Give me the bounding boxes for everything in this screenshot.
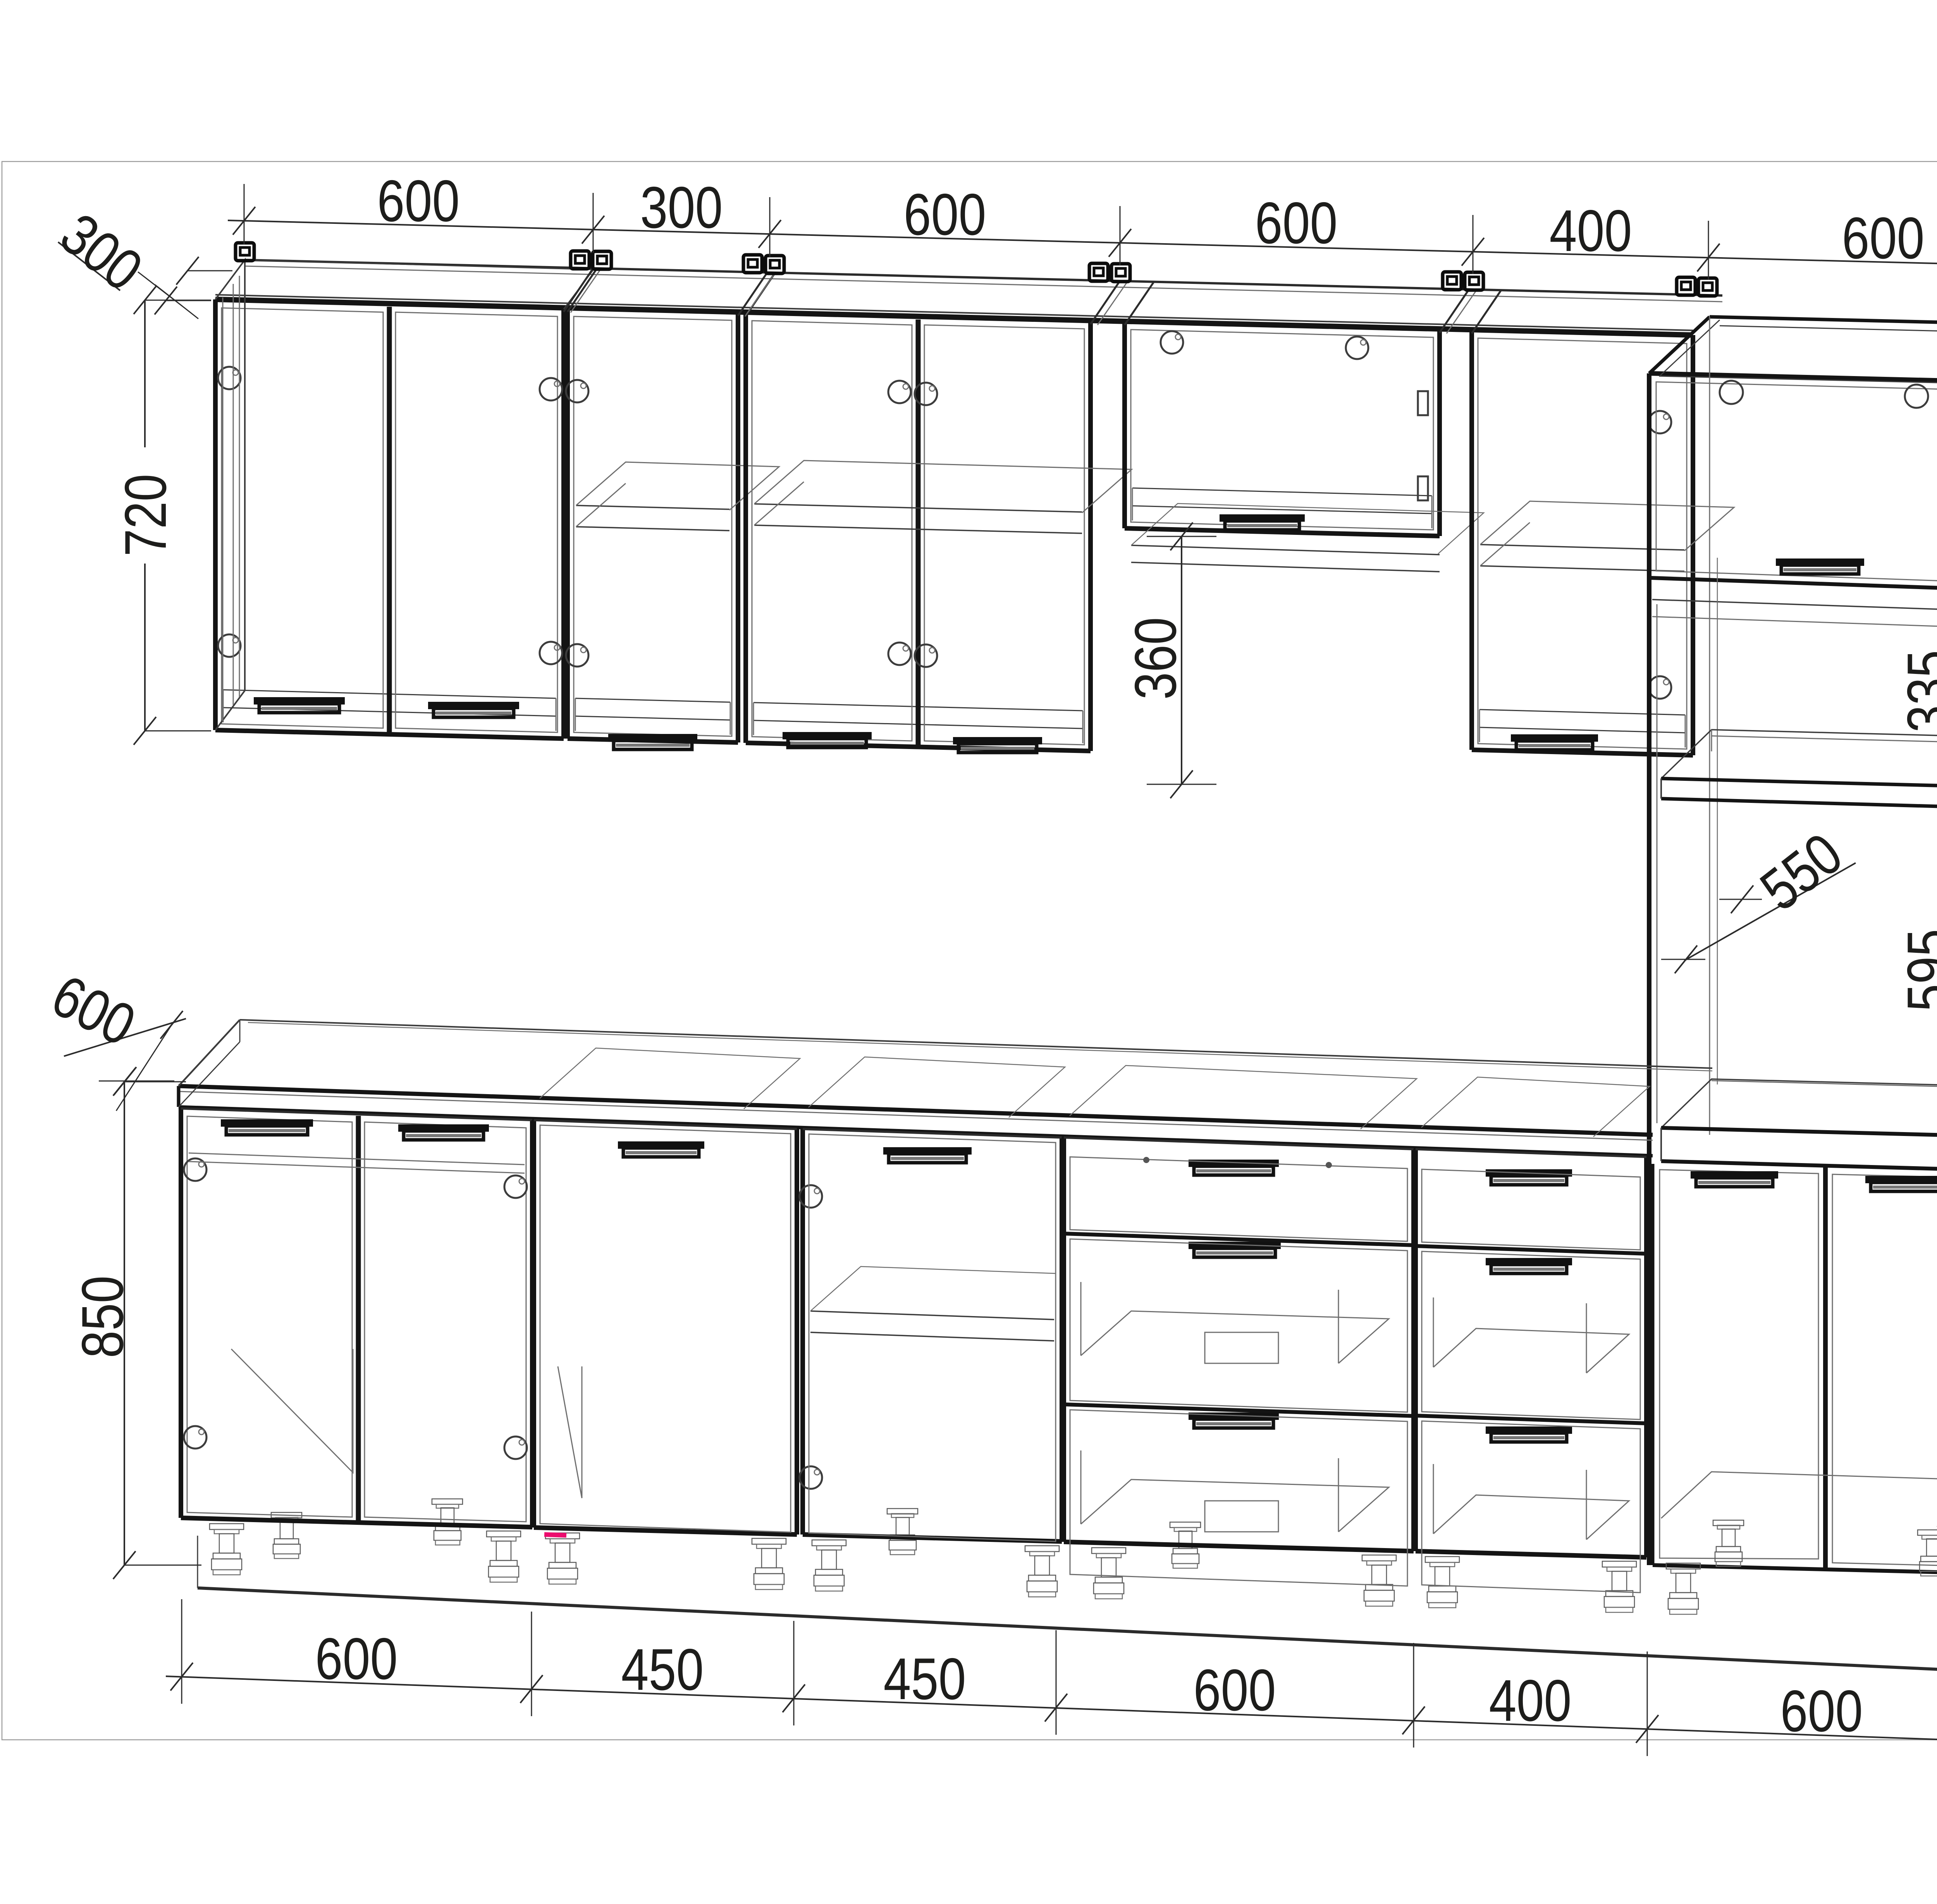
svg-text:850: 850 <box>70 1276 136 1358</box>
svg-text:600: 600 <box>1780 1678 1863 1744</box>
svg-text:595: 595 <box>1895 929 1937 1012</box>
svg-text:720: 720 <box>113 474 179 557</box>
svg-text:400: 400 <box>1550 198 1632 264</box>
svg-text:600: 600 <box>315 1626 398 1692</box>
svg-text:600: 600 <box>1842 205 1925 271</box>
svg-text:600: 600 <box>377 168 460 234</box>
svg-text:360: 360 <box>1123 617 1189 700</box>
svg-text:335: 335 <box>1895 650 1937 733</box>
svg-text:600: 600 <box>1194 1657 1276 1723</box>
svg-text:400: 400 <box>1489 1668 1572 1734</box>
svg-text:300: 300 <box>640 175 723 241</box>
svg-text:600: 600 <box>904 182 986 247</box>
svg-text:450: 450 <box>884 1646 966 1712</box>
svg-text:600: 600 <box>1255 190 1338 256</box>
svg-text:450: 450 <box>621 1637 704 1703</box>
